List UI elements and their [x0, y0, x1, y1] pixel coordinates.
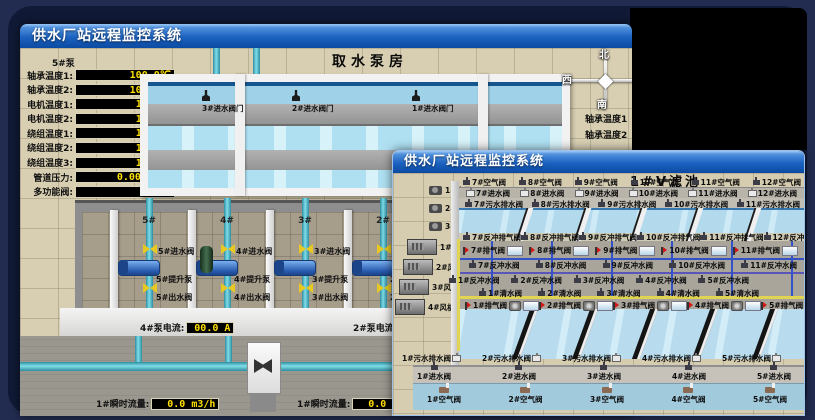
- valve-icon[interactable]: [479, 291, 486, 296]
- lift-pump-icon[interactable]: [352, 260, 394, 276]
- blower-icon[interactable]: [403, 259, 433, 275]
- inlet-valve[interactable]: 5#进水阀: [757, 365, 791, 382]
- tank-box-icon: [597, 301, 613, 311]
- riser-pipe: [213, 48, 220, 76]
- red-flag-icon: [761, 302, 767, 310]
- valve-icon[interactable]: [693, 356, 700, 361]
- gate-valve-icon[interactable]: [202, 90, 210, 101]
- outlet-valve-label: 4#出水阀: [234, 292, 270, 303]
- compass-rose: 北 西 南 东: [560, 50, 632, 112]
- backwash-exhaust-valve[interactable]: 12#反冲排气阀: [764, 232, 805, 243]
- valve-icon[interactable]: [453, 356, 460, 361]
- valve-label: 8#排气阀: [537, 245, 571, 256]
- current-readout: 4#泵电流: 00.0 A: [140, 321, 234, 334]
- air-valve[interactable]: 4#空气阀: [671, 387, 705, 405]
- fan-icon: [657, 301, 669, 311]
- lift-pump-label: 5#提升泵: [156, 274, 192, 285]
- red-flag-icon: [613, 302, 619, 310]
- air-valve-row-bottom: 1#空气阀2#空气阀3#空气阀4#空气阀5#空气阀: [427, 387, 787, 405]
- valve-label: 8#空气阀: [528, 177, 562, 188]
- telemetry-label: 绕组温度2:: [23, 141, 75, 154]
- inlet-valve[interactable]: 1#进水阀: [417, 365, 451, 382]
- background-window: [630, 8, 807, 150]
- exhaust-valve[interactable]: 5#排气阀: [761, 300, 805, 311]
- valve-label: 2#反冲水阀: [520, 275, 562, 286]
- valve-icon[interactable]: [519, 180, 526, 185]
- valve-icon[interactable]: [576, 191, 583, 196]
- valve-icon[interactable]: [692, 180, 699, 185]
- valve-label: 3#进水阀: [587, 371, 621, 382]
- pump-bay: 5# 5#进水阀 5#提升泵 5#出水阀: [110, 212, 188, 308]
- valve-label: 3#反冲水阀: [583, 275, 625, 286]
- valve-icon[interactable]: [575, 180, 582, 185]
- valve-icon[interactable]: [669, 263, 676, 268]
- inlet-valve[interactable]: 11#进水阀: [689, 188, 737, 199]
- clean-water-valve[interactable]: 2#清水阀: [538, 288, 581, 299]
- inlet-valve[interactable]: 7#进水阀: [467, 188, 510, 199]
- backwash-exhaust-valve[interactable]: 7#反冲排气阀: [463, 232, 521, 243]
- red-flag-icon: [529, 247, 535, 255]
- valve-label: 11#污水排水阀: [746, 199, 800, 210]
- side-label: 轴承温度2: [585, 128, 627, 141]
- valve-icon[interactable]: [700, 235, 707, 240]
- valve-label: 1#进水阀: [417, 371, 451, 382]
- butterfly-valve-unit[interactable]: [247, 342, 281, 394]
- bay-pipe: [380, 198, 387, 310]
- valve-icon[interactable]: [515, 365, 522, 370]
- inlet-valve-row-top: 7#进水阀8#进水阀9#进水阀10#进水阀11#进水阀12#进水阀: [467, 188, 797, 199]
- valve-label: 8#进水阀: [530, 188, 564, 199]
- valve-icon[interactable]: [439, 387, 449, 393]
- telemetry-label: 轴承温度2:: [23, 83, 75, 96]
- valve-label: 9#反冲水阀: [612, 260, 654, 271]
- valve-icon[interactable]: [449, 278, 456, 283]
- exhaust-valve[interactable]: 3#排气阀: [613, 300, 687, 311]
- intake-valve-label: 1#进水阀门: [412, 103, 454, 114]
- bay-number: 5#: [110, 216, 188, 226]
- valve-icon[interactable]: [536, 263, 543, 268]
- valve-label: 1#污水排水阀: [402, 353, 451, 364]
- flow-readout: 1#瞬时流量: 0.0 m3/h: [96, 397, 219, 410]
- valve-icon[interactable]: [770, 365, 777, 370]
- valve-label: 1#空气阀: [427, 394, 461, 405]
- lift-pump-icon[interactable]: [196, 260, 238, 276]
- valve-label: 7#污水排水阀: [474, 199, 523, 210]
- valve-label: 4#清水阀: [666, 288, 700, 299]
- current-value: 00.0 A: [186, 322, 234, 334]
- valve-label: 1#排气阀: [473, 300, 507, 311]
- valve-label: 10#排气阀: [669, 245, 708, 256]
- valve-label: 9#反冲排气阀: [588, 232, 637, 243]
- valve-label: 2#进水阀: [502, 371, 536, 382]
- air-valve[interactable]: 2#空气阀: [508, 387, 542, 405]
- valve-label: 7#空气阀: [472, 177, 506, 188]
- valve-label: 12#空气阀: [762, 177, 801, 188]
- valve-icon[interactable]: [467, 191, 474, 196]
- valve-icon[interactable]: [521, 191, 528, 196]
- intake-valve[interactable]: 1#进水阀门: [412, 90, 454, 114]
- outlet-valve-icon[interactable]: [221, 283, 235, 293]
- valve-label: 8#反冲排气阀: [530, 232, 579, 243]
- inlet-valve-icon[interactable]: [299, 244, 313, 254]
- lift-pump-icon[interactable]: [274, 260, 316, 276]
- bay-number: 3#: [266, 216, 344, 226]
- valve-label: 4#空气阀: [671, 394, 705, 405]
- valve-icon[interactable]: [737, 202, 744, 207]
- tank-box-icon: [523, 301, 539, 311]
- outlet-valve-icon[interactable]: [299, 283, 313, 293]
- valve-label: 10#空气阀: [640, 177, 679, 188]
- telemetry-label: 多功能阀:: [23, 185, 75, 198]
- valve-label: 4#排气阀: [695, 300, 729, 311]
- tank-box-icon: [671, 301, 687, 311]
- clean-water-valve[interactable]: 4#清水阀: [657, 288, 700, 299]
- tank-box-icon: [711, 246, 727, 256]
- air-valve[interactable]: 5#空气阀: [753, 387, 787, 405]
- backwash-exhaust-valve[interactable]: 10#反冲排气阀: [637, 232, 700, 243]
- air-duct: [457, 239, 460, 351]
- clean-water-valve[interactable]: 3#清水阀: [597, 288, 640, 299]
- outlet-valve-label: 5#出水阀: [156, 292, 192, 303]
- intake-valve-label: 2#进水阀门: [292, 103, 334, 114]
- valve-label: 7#反冲排气阀: [472, 232, 521, 243]
- fan-icon: [731, 301, 743, 311]
- valve-icon[interactable]: [520, 387, 530, 393]
- backwash-exhaust-valve[interactable]: 11#反冲排气阀: [700, 232, 763, 243]
- compass-south: 南: [597, 96, 607, 111]
- backwash-valve[interactable]: 3#反冲水阀: [574, 275, 625, 286]
- window1-titlebar[interactable]: 供水厂站远程监控系统: [20, 24, 632, 48]
- inlet-valve-row-bottom: 1#进水阀2#进水阀3#进水阀4#进水阀5#进水阀: [417, 365, 791, 382]
- backwash-valve-row-bottom: 1#反冲水阀2#反冲水阀3#反冲水阀4#反冲水阀5#反冲水阀: [449, 275, 749, 286]
- bay-pipe: [146, 198, 153, 310]
- valve-label: 11#排气阀: [741, 245, 780, 256]
- valve-label: 2#排气阀: [547, 300, 581, 311]
- inlet-valve[interactable]: 8#进水阀: [521, 188, 564, 199]
- tank-box-icon: [639, 246, 655, 256]
- valve-icon[interactable]: [765, 387, 775, 393]
- inlet-valve[interactable]: 12#进水阀: [749, 188, 797, 199]
- exhaust-valve[interactable]: 2#排气阀: [539, 300, 613, 311]
- exhaust-valve[interactable]: 1#排气阀: [465, 300, 539, 311]
- valve-icon[interactable]: [749, 191, 756, 196]
- fan-icon: [509, 301, 521, 311]
- valve-label: 3#清水阀: [606, 288, 640, 299]
- drain-valve[interactable]: 3#污水排水阀: [562, 353, 620, 364]
- red-flag-icon: [687, 302, 693, 310]
- air-valve-row-top: 7#空气阀8#空气阀9#空气阀10#空气阀11#空气阀12#空气阀: [463, 177, 801, 188]
- air-valve[interactable]: 3#空气阀: [590, 387, 624, 405]
- air-valve[interactable]: 9#空气阀: [575, 177, 618, 188]
- valve-icon[interactable]: [685, 365, 692, 370]
- drain-valve[interactable]: 2#污水排水阀: [482, 353, 540, 364]
- outlet-riser: [225, 336, 232, 364]
- drain-valve[interactable]: 11#污水排水阀: [737, 199, 800, 210]
- drain-valve[interactable]: 1#污水排水阀: [402, 353, 460, 364]
- pump-icon[interactable]: [429, 204, 442, 213]
- clean-water-valve[interactable]: 5#清水阀: [716, 288, 759, 299]
- window-filter-pool: 供水厂站远程监控系统 1#V滤池 1#水泵 2#水泵 3#水泵: [392, 150, 805, 416]
- valve-label: 5#污水排水阀: [722, 353, 771, 364]
- drain-valve[interactable]: 8#污水排水阀: [532, 199, 590, 210]
- pump-bay: 4# 4#进水阀 4#提升泵 4#出水阀: [188, 212, 266, 308]
- valve-icon[interactable]: [637, 235, 644, 240]
- valve-label: 7#进水阀: [476, 188, 510, 199]
- valve-icon[interactable]: [597, 291, 604, 296]
- inlet-valve[interactable]: 10#进水阀: [630, 188, 678, 199]
- drain-valve[interactable]: 4#污水排水阀: [642, 353, 700, 364]
- telemetry-label: 绕组温度3:: [23, 156, 75, 169]
- flow-label: 1#瞬时流量:: [297, 397, 350, 410]
- valve-label: 9#污水排水阀: [607, 199, 656, 210]
- current-label: 2#泵电流:: [353, 321, 397, 334]
- valve-label: 9#空气阀: [584, 177, 618, 188]
- lower-filter-cells: [459, 309, 805, 359]
- red-flag-icon: [733, 247, 739, 255]
- riser-pipe: [253, 48, 260, 76]
- valve-label: 11#空气阀: [701, 177, 740, 188]
- inlet-valve[interactable]: 9#进水阀: [576, 188, 619, 199]
- drain-valve[interactable]: 5#污水排水阀: [722, 353, 780, 364]
- valve-icon[interactable]: [665, 202, 672, 207]
- lift-pump-label: 3#提升泵: [312, 274, 348, 285]
- valve-icon[interactable]: [683, 387, 693, 393]
- tank-box-icon: [573, 246, 589, 256]
- inlet-valve[interactable]: 4#进水阀: [672, 365, 706, 382]
- valve-icon[interactable]: [521, 235, 528, 240]
- bay-pipe: [224, 198, 231, 310]
- inlet-valve-icon[interactable]: [377, 244, 391, 254]
- telemetry-label: 电机温度1:: [23, 98, 75, 111]
- valve-icon[interactable]: [753, 180, 760, 185]
- pump-icon[interactable]: [429, 222, 442, 231]
- valve-label: 10#反冲排气阀: [646, 232, 700, 243]
- bay-number: 4#: [188, 216, 266, 226]
- telemetry-label: 管道压力:: [23, 171, 75, 184]
- telemetry-label: 电机温度2:: [23, 112, 75, 125]
- valve-label: 12#进水阀: [758, 188, 797, 199]
- valve-icon[interactable]: [431, 365, 438, 370]
- valve-icon[interactable]: [636, 278, 643, 283]
- valve-label: 11#进水阀: [698, 188, 737, 199]
- backwash-valve[interactable]: 8#反冲水阀: [536, 260, 587, 271]
- valve-label: 11#反冲水阀: [750, 260, 797, 271]
- drain-valve-row-top: 7#污水排水阀8#污水排水阀9#污水排水阀10#污水排水阀11#污水排水阀: [465, 199, 800, 210]
- air-valve[interactable]: 12#空气阀: [753, 177, 801, 188]
- red-flag-icon: [463, 247, 469, 255]
- drain-valve[interactable]: 9#污水排水阀: [598, 199, 656, 210]
- exhaust-valve[interactable]: 10#排气阀: [661, 245, 726, 256]
- backwash-valve[interactable]: 11#反冲水阀: [741, 260, 797, 271]
- valve-label: 1#清水阀: [488, 288, 522, 299]
- lift-pump-icon[interactable]: [118, 260, 160, 276]
- valve-label: 2#清水阀: [547, 288, 581, 299]
- bay-pipe: [302, 198, 309, 310]
- clean-water-valve[interactable]: 1#清水阀: [479, 288, 522, 299]
- valve-label: 11#反冲排气阀: [709, 232, 763, 243]
- backwash-valve[interactable]: 10#反冲水阀: [669, 260, 725, 271]
- valve-label: 2#空气阀: [508, 394, 542, 405]
- valve-icon[interactable]: [532, 202, 539, 207]
- exhaust-valve[interactable]: 4#排气阀: [687, 300, 761, 311]
- valve-icon[interactable]: [689, 191, 696, 196]
- valve-label: 5#进水阀: [757, 371, 791, 382]
- exhaust-valve-row-bottom: 1#排气阀2#排气阀3#排气阀4#排气阀5#排气阀: [465, 300, 777, 311]
- valve-icon[interactable]: [716, 291, 723, 296]
- red-flag-icon: [539, 302, 545, 310]
- air-valve[interactable]: 1#空气阀: [427, 387, 461, 405]
- gate-valve-icon[interactable]: [412, 90, 420, 101]
- valve-label: 10#反冲水阀: [678, 260, 725, 271]
- tank-box-icon: [507, 246, 523, 256]
- valve-icon[interactable]: [698, 278, 705, 283]
- exhaust-valve[interactable]: 8#排气阀: [529, 245, 589, 256]
- telemetry-label: 绕组温度1:: [23, 127, 75, 140]
- valve-label: 2#污水排水阀: [482, 353, 531, 364]
- exhaust-valve[interactable]: 7#排气阀: [463, 245, 523, 256]
- valve-icon[interactable]: [511, 278, 518, 283]
- red-flag-icon: [465, 302, 471, 310]
- valve-label: 4#反冲水阀: [645, 275, 687, 286]
- valve-icon[interactable]: [613, 356, 620, 361]
- valve-label: 1#反冲水阀: [458, 275, 500, 286]
- drain-valve[interactable]: 10#污水排水阀: [665, 199, 728, 210]
- intake-valve[interactable]: 3#进水阀门: [202, 90, 244, 114]
- telemetry-label: 轴承温度1:: [23, 69, 75, 82]
- valve-label: 3#排气阀: [621, 300, 655, 311]
- valve-label: 5#反冲水阀: [707, 275, 749, 286]
- valve-icon[interactable]: [465, 202, 472, 207]
- tank-box-icon: [745, 301, 761, 311]
- drain-valve[interactable]: 7#污水排水阀: [465, 199, 523, 210]
- valve-icon[interactable]: [538, 291, 545, 296]
- backwash-exhaust-valve[interactable]: 8#反冲排气阀: [521, 232, 579, 243]
- valve-label: 5#排气阀: [769, 300, 803, 311]
- outlet-valve-label: 3#出水阀: [312, 292, 348, 303]
- valve-icon[interactable]: [602, 387, 612, 393]
- intake-valve[interactable]: 2#进水阀门: [292, 90, 334, 114]
- air-valve[interactable]: 8#空气阀: [519, 177, 562, 188]
- exhaust-valve-row-top: 7#排气阀8#排气阀9#排气阀10#排气阀11#排气阀: [463, 245, 798, 256]
- backwash-valve[interactable]: 7#反冲水阀: [469, 260, 520, 271]
- valve-label: 4#进水阀: [672, 371, 706, 382]
- backwash-exhaust-valve[interactable]: 9#反冲排气阀: [579, 232, 637, 243]
- valve-label: 8#污水排水阀: [541, 199, 590, 210]
- valve-icon[interactable]: [469, 263, 476, 268]
- air-valve[interactable]: 11#空气阀: [692, 177, 740, 188]
- backwash-valve[interactable]: 2#反冲水阀: [511, 275, 562, 286]
- exhaust-valve[interactable]: 9#排气阀: [595, 245, 655, 256]
- valve-label: 5#空气阀: [753, 394, 787, 405]
- compass-north: 北: [599, 46, 609, 61]
- gate-valve-icon[interactable]: [292, 90, 300, 101]
- valve-icon[interactable]: [600, 365, 607, 370]
- outlet-valve-icon[interactable]: [143, 283, 157, 293]
- valve-icon[interactable]: [630, 191, 637, 196]
- blower-icon[interactable]: [395, 299, 425, 315]
- blower-icon[interactable]: [407, 239, 437, 255]
- red-flag-icon: [595, 247, 601, 255]
- valve-icon[interactable]: [657, 291, 664, 296]
- pump-selector-label[interactable]: 5#泵: [52, 56, 75, 69]
- clean-water-pipe: [459, 272, 805, 274]
- blower-icon[interactable]: [399, 279, 429, 295]
- valve-icon[interactable]: [463, 235, 470, 240]
- inlet-valve-icon[interactable]: [143, 244, 157, 254]
- compass-center: [598, 74, 614, 90]
- inlet-valve[interactable]: 3#进水阀: [587, 365, 621, 382]
- valve-icon[interactable]: [764, 235, 771, 240]
- valve-icon[interactable]: [574, 278, 581, 283]
- valve-label: 3#空气阀: [590, 394, 624, 405]
- lift-pump-label: 4#提升泵: [234, 274, 270, 285]
- backwash-valve[interactable]: 5#反冲水阀: [698, 275, 749, 286]
- valve-label: 8#反冲水阀: [545, 260, 587, 271]
- outlet-valve-icon[interactable]: [377, 283, 391, 293]
- valve-label: 9#排气阀: [603, 245, 637, 256]
- valve-label: 4#污水排水阀: [642, 353, 691, 364]
- valve-icon[interactable]: [579, 235, 586, 240]
- valve-label: 7#反冲水阀: [478, 260, 520, 271]
- valve-label: 12#反冲排气阀: [773, 232, 805, 243]
- backwash-valve-row-top: 7#反冲水阀8#反冲水阀9#反冲水阀10#反冲水阀11#反冲水阀: [469, 260, 797, 271]
- room-title: 取水泵房: [315, 51, 425, 71]
- backwash-valve[interactable]: 4#反冲水阀: [636, 275, 687, 286]
- pump-icon[interactable]: [429, 186, 442, 195]
- valve-icon[interactable]: [631, 180, 638, 185]
- air-valve[interactable]: 7#空气阀: [463, 177, 506, 188]
- backwash-valve[interactable]: 1#反冲水阀: [449, 275, 500, 286]
- exhaust-valve[interactable]: 11#排气阀: [733, 245, 798, 256]
- clean-valve-row: 1#清水阀2#清水阀3#清水阀4#清水阀5#清水阀: [479, 288, 759, 299]
- valve-icon[interactable]: [533, 356, 540, 361]
- valve-icon[interactable]: [598, 202, 605, 207]
- flow-value: 0.0 m3/h: [151, 398, 219, 410]
- side-label: 轴承温度1: [585, 112, 627, 125]
- pump-bays: 5# 5#进水阀 5#提升泵 5#出水阀 4# 4#进水阀 4#提升泵 4#出水…: [110, 212, 422, 308]
- valve-label: 5#清水阀: [725, 288, 759, 299]
- compass-west: 西: [562, 71, 572, 86]
- inlet-valve[interactable]: 2#进水阀: [502, 365, 536, 382]
- current-label: 4#泵电流:: [140, 321, 184, 334]
- red-flag-icon: [661, 247, 667, 255]
- backwash-valve[interactable]: 9#反冲水阀: [603, 260, 654, 271]
- valve-icon[interactable]: [603, 263, 610, 268]
- pump-bay: 3# 3#进水阀 3#提升泵 3#出水阀: [266, 212, 344, 308]
- inlet-valve-icon[interactable]: [221, 244, 235, 254]
- valve-icon[interactable]: [463, 180, 470, 185]
- intake-valve-label: 3#进水阀门: [202, 103, 244, 114]
- valve-label: 10#污水排水阀: [674, 199, 728, 210]
- intake-channel: [148, 126, 562, 150]
- flow-label: 1#瞬时流量:: [96, 397, 149, 410]
- window2-titlebar[interactable]: 供水厂站远程监控系统: [393, 151, 804, 173]
- valve-label: 9#进水阀: [585, 188, 619, 199]
- valve-icon[interactable]: [741, 263, 748, 268]
- valve-label: 7#排气阀: [471, 245, 505, 256]
- air-valve[interactable]: 10#空气阀: [631, 177, 679, 188]
- drain-valve-row-bottom: 1#污水排水阀2#污水排水阀3#污水排水阀4#污水排水阀5#污水排水阀: [402, 353, 780, 364]
- tank-box-icon: [782, 246, 798, 256]
- backwash-exhaust-row-top: 7#反冲排气阀8#反冲排气阀9#反冲排气阀10#反冲排气阀11#反冲排气阀12#…: [463, 232, 801, 243]
- valve-icon[interactable]: [773, 356, 780, 361]
- valve-label: 10#进水阀: [639, 188, 678, 199]
- outlet-riser: [135, 336, 142, 364]
- fan-icon: [583, 301, 595, 311]
